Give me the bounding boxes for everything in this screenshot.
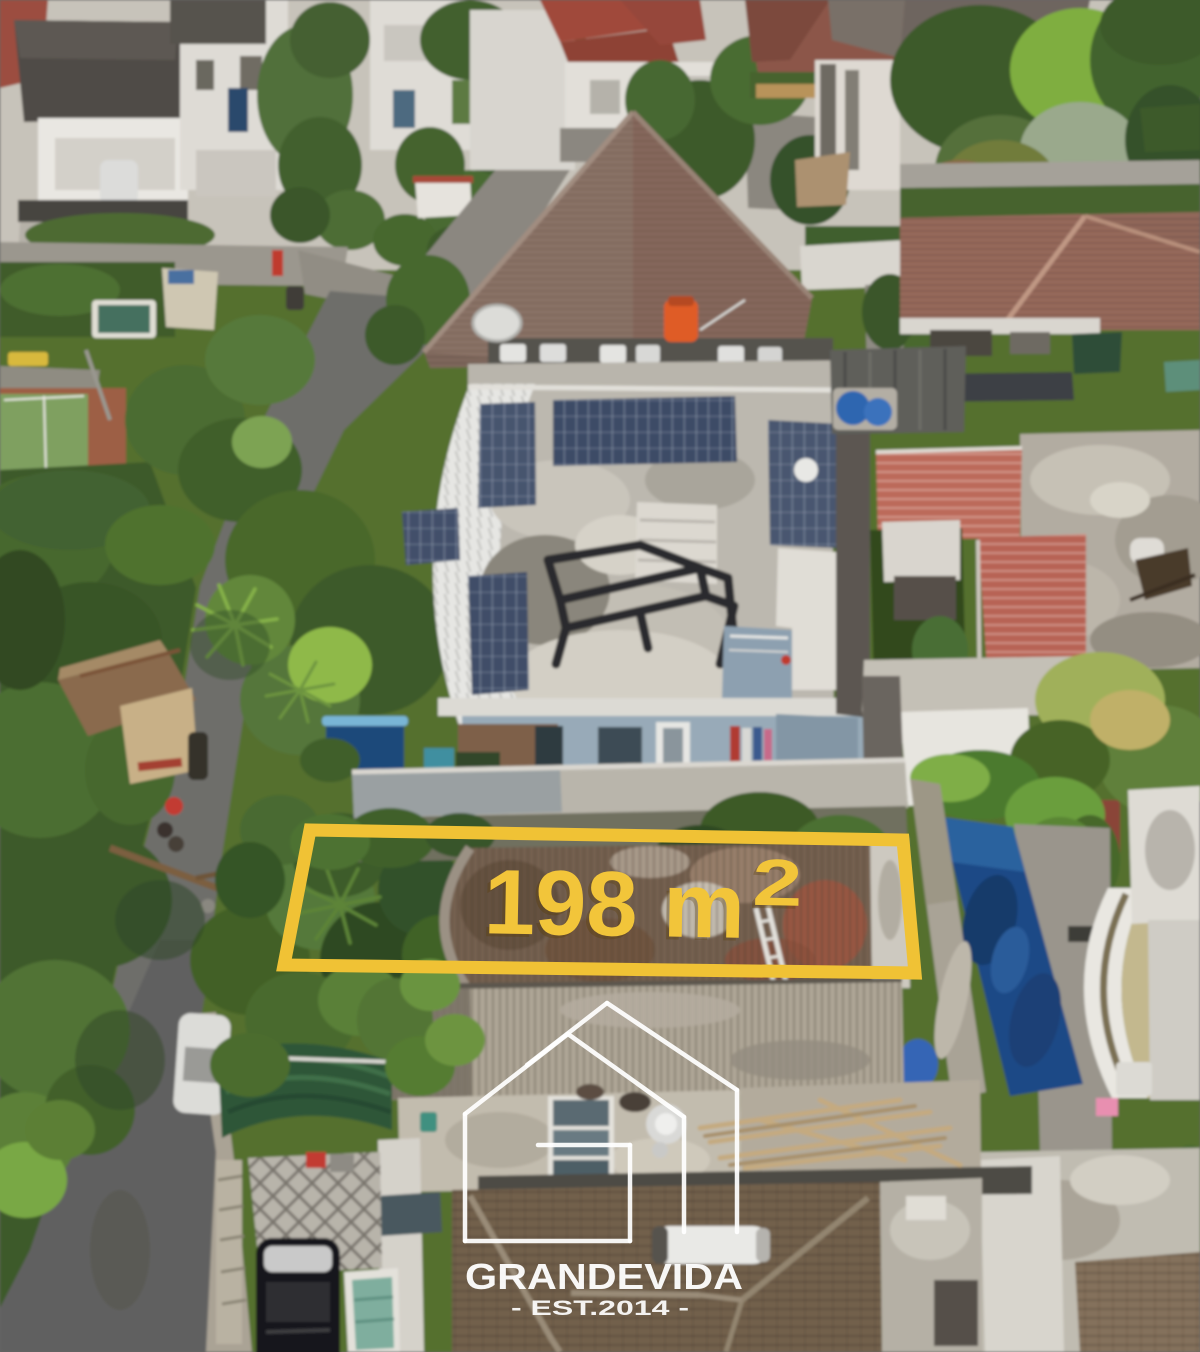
svg-text:198 m: 198 m xyxy=(483,851,746,958)
svg-text:2: 2 xyxy=(752,845,803,920)
svg-text:- EST.2014 -: - EST.2014 - xyxy=(511,1297,689,1320)
svg-text:GRANDEVIDA: GRANDEVIDA xyxy=(465,1256,743,1297)
